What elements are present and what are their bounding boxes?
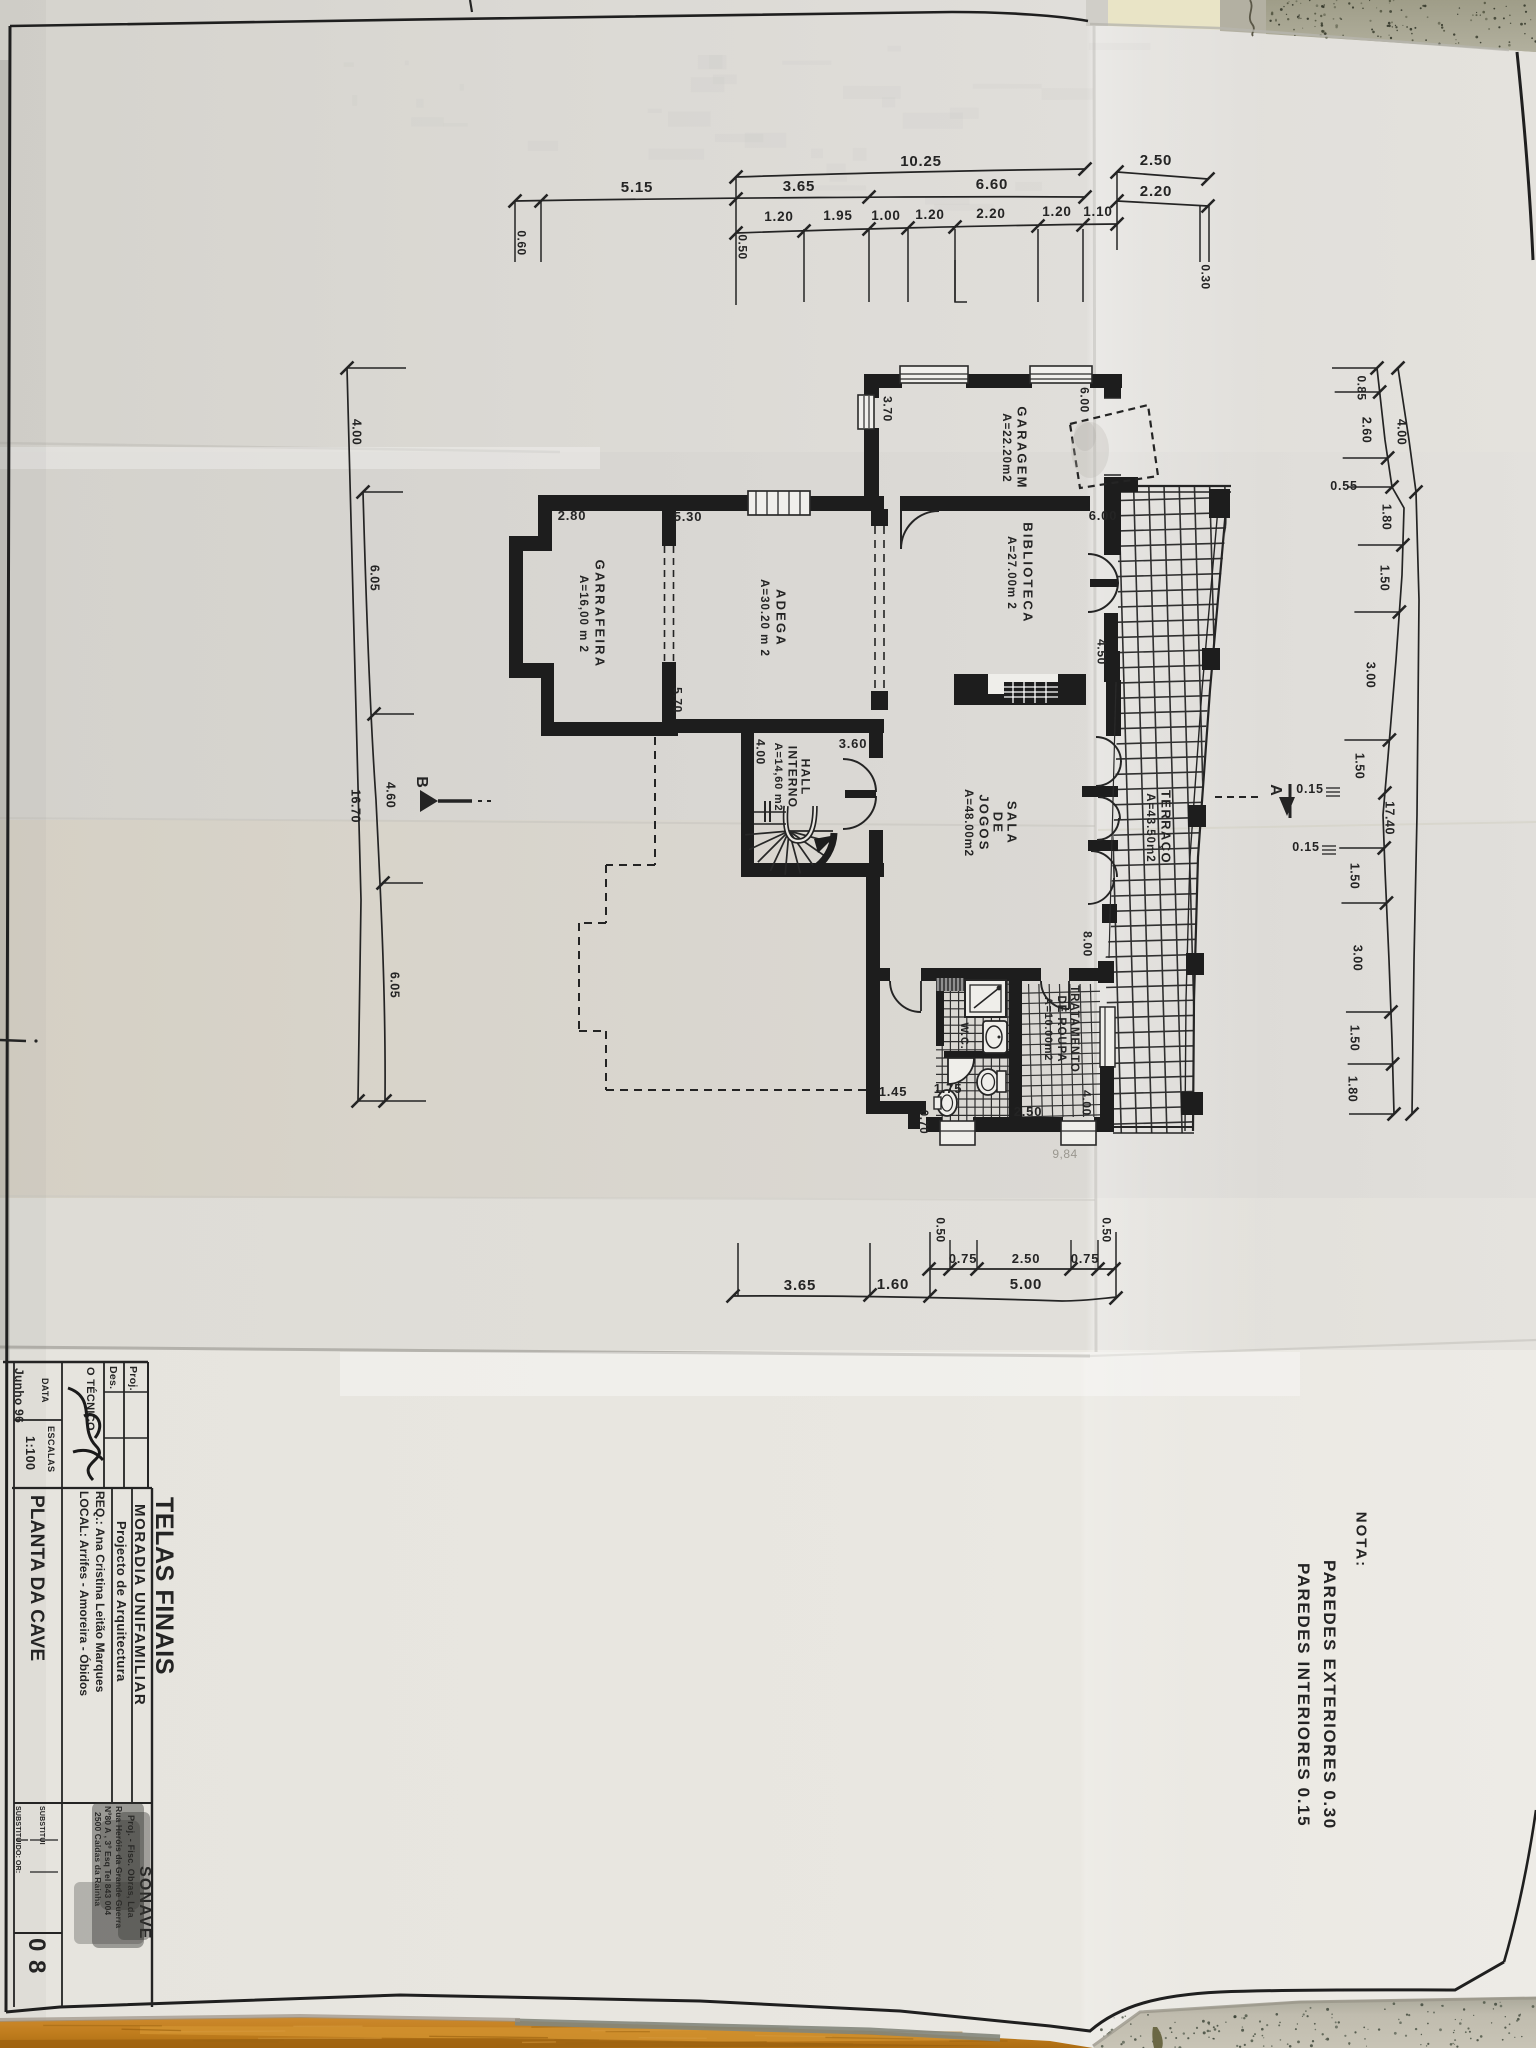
svg-text:17.40: 17.40 [1383, 801, 1397, 835]
svg-text:W.C.: W.C. [958, 1022, 970, 1049]
svg-text:0.30: 0.30 [1199, 264, 1213, 289]
svg-text:6.00: 6.00 [1089, 508, 1118, 523]
svg-text:TERRAÇO: TERRAÇO [1158, 790, 1173, 864]
svg-text:0.75: 0.75 [1071, 1251, 1100, 1266]
svg-text:1.20: 1.20 [764, 209, 793, 224]
svg-text:Projecto de Arquitectura: Projecto de Arquitectura [114, 1521, 129, 1682]
svg-text:5.70: 5.70 [671, 687, 685, 713]
svg-text:10.25: 10.25 [900, 153, 942, 170]
svg-text:LOCAL: Arrifes - Amoreira - Ób: LOCAL: Arrifes - Amoreira - Óbidos [77, 1491, 92, 1696]
svg-text:TELAS FINAIS: TELAS FINAIS [150, 1497, 178, 1675]
svg-text:REQ.: Ana Cristina Leitão Marq: REQ.: Ana Cristina Leitão Marques [93, 1491, 107, 1693]
svg-text:6.05: 6.05 [388, 972, 402, 998]
svg-text:2.50: 2.50 [1140, 152, 1172, 169]
svg-text:4.00: 4.00 [1080, 1090, 1094, 1116]
svg-text:2.20: 2.20 [976, 206, 1005, 221]
svg-text:JOGOS: JOGOS [976, 794, 991, 851]
svg-text:0.60: 0.60 [515, 230, 529, 255]
svg-text:2.60: 2.60 [1360, 417, 1374, 443]
svg-text:1.50: 1.50 [1348, 863, 1362, 889]
svg-text:6.05: 6.05 [368, 565, 382, 591]
svg-text:OR:: OR: [14, 1860, 21, 1873]
svg-text:1.20: 1.20 [915, 207, 944, 222]
svg-text:PAREDES INTERIORES 0.15: PAREDES INTERIORES 0.15 [1294, 1563, 1313, 1827]
svg-text:0.50: 0.50 [736, 234, 750, 259]
svg-text:1:100: 1:100 [23, 1436, 37, 1470]
svg-text:0.85: 0.85 [1355, 376, 1369, 401]
svg-text:0.50: 0.50 [1100, 1217, 1114, 1242]
svg-text:4.00: 4.00 [350, 419, 364, 445]
svg-text:NOTA:: NOTA: [1353, 1512, 1370, 1568]
svg-text:SUBSTITUIDO:: SUBSTITUIDO: [14, 1806, 21, 1858]
svg-text:A=22.20m2: A=22.20m2 [1000, 413, 1012, 482]
svg-text:PLANTA DA CAVE: PLANTA DA CAVE [26, 1495, 47, 1661]
svg-text:5.15: 5.15 [621, 179, 653, 196]
svg-text:0.15: 0.15 [1296, 782, 1324, 796]
svg-text:MORADIA UNIFAMILIAR: MORADIA UNIFAMILIAR [131, 1504, 148, 1706]
svg-text:1.10: 1.10 [1083, 204, 1112, 219]
svg-text:8.00: 8.00 [1081, 931, 1095, 957]
svg-text:ESCALAS: ESCALAS [46, 1426, 56, 1473]
svg-text:1.50: 1.50 [1378, 565, 1392, 591]
svg-text:3.65: 3.65 [784, 1277, 816, 1294]
svg-text:1.00: 1.00 [871, 208, 900, 223]
svg-text:DATA: DATA [40, 1378, 50, 1403]
svg-text:ADEGA: ADEGA [773, 589, 788, 647]
svg-text:2.80: 2.80 [558, 508, 587, 523]
svg-text:5.30: 5.30 [674, 509, 703, 524]
svg-text:1.75: 1.75 [934, 1081, 963, 1096]
svg-text:TRATAMENTO: TRATAMENTO [1068, 985, 1080, 1073]
svg-text:A: A [1267, 784, 1284, 796]
svg-text:3.60: 3.60 [839, 736, 868, 751]
svg-text:9,84: 9,84 [1052, 1147, 1077, 1161]
svg-text:2.50: 2.50 [1014, 1104, 1043, 1119]
svg-text:PAREDES EXTERIORES 0.30: PAREDES EXTERIORES 0.30 [1320, 1560, 1339, 1830]
svg-text:GARAGEM: GARAGEM [1014, 406, 1029, 489]
svg-text:A=14,60 m2: A=14,60 m2 [772, 743, 784, 812]
svg-text:A=43.50m2: A=43.50m2 [1144, 793, 1156, 862]
svg-text:A=27.00m 2: A=27.00m 2 [1005, 536, 1017, 610]
svg-text:4.00: 4.00 [1395, 419, 1409, 445]
svg-text:3.00: 3.00 [1351, 945, 1365, 971]
svg-text:6.60: 6.60 [976, 176, 1008, 193]
svg-text:4.50: 4.50 [1095, 639, 1109, 665]
svg-text:A=30.20 m 2: A=30.20 m 2 [758, 579, 770, 657]
svg-text:3.65: 3.65 [783, 178, 815, 195]
svg-text:A=16,00 m 2: A=16,00 m 2 [577, 575, 589, 653]
svg-text:4.00: 4.00 [754, 739, 768, 765]
svg-text:INTERNO: INTERNO [786, 746, 800, 808]
svg-text:1.45: 1.45 [879, 1084, 908, 1099]
svg-text:0.55: 0.55 [1330, 479, 1358, 493]
svg-text:4.60: 4.60 [384, 782, 398, 808]
svg-text:1.80: 1.80 [1346, 1076, 1360, 1102]
svg-text:DE: DE [990, 812, 1005, 834]
svg-text:0.50: 0.50 [934, 1217, 948, 1242]
svg-text:BIBLIOTECA: BIBLIOTECA [1020, 522, 1035, 623]
svg-text:1.50: 1.50 [1348, 1025, 1362, 1051]
svg-text:5.00: 5.00 [1010, 1276, 1042, 1293]
svg-text:0.75: 0.75 [949, 1251, 978, 1266]
svg-text:2.50: 2.50 [1012, 1251, 1041, 1266]
svg-text:B: B [413, 776, 430, 788]
svg-text:3.00: 3.00 [1364, 662, 1378, 688]
svg-text:GARRAFEIRA: GARRAFEIRA [592, 560, 607, 669]
svg-text:0.15: 0.15 [1292, 840, 1320, 854]
svg-text:Proj.: Proj. [127, 1366, 139, 1391]
svg-text:2.20: 2.20 [1140, 183, 1172, 200]
svg-text:DE ROUPA: DE ROUPA [1055, 995, 1067, 1062]
svg-text:HALL: HALL [799, 759, 813, 796]
svg-text:0.70: 0.70 [917, 1110, 929, 1134]
svg-text:1.80: 1.80 [1380, 504, 1394, 530]
svg-text:A=10.00m2: A=10.00m2 [1042, 997, 1054, 1061]
svg-text:1.50: 1.50 [1353, 753, 1367, 779]
svg-text:1.60: 1.60 [877, 1276, 909, 1293]
svg-text:SALA: SALA [1004, 801, 1019, 845]
svg-text:SUBSTITUI: SUBSTITUI [38, 1806, 45, 1845]
svg-text:1.95: 1.95 [823, 208, 852, 223]
svg-text:Junho 96: Junho 96 [12, 1368, 26, 1423]
svg-text:A=48.00m2: A=48.00m2 [962, 789, 974, 857]
svg-text:1.20: 1.20 [1042, 204, 1071, 219]
svg-text:6.00: 6.00 [1078, 387, 1092, 413]
svg-text:16.70: 16.70 [349, 789, 363, 823]
svg-text:0 8: 0 8 [23, 1938, 50, 1974]
svg-text:Des.: Des. [107, 1366, 119, 1389]
svg-text:3.70: 3.70 [881, 396, 895, 422]
